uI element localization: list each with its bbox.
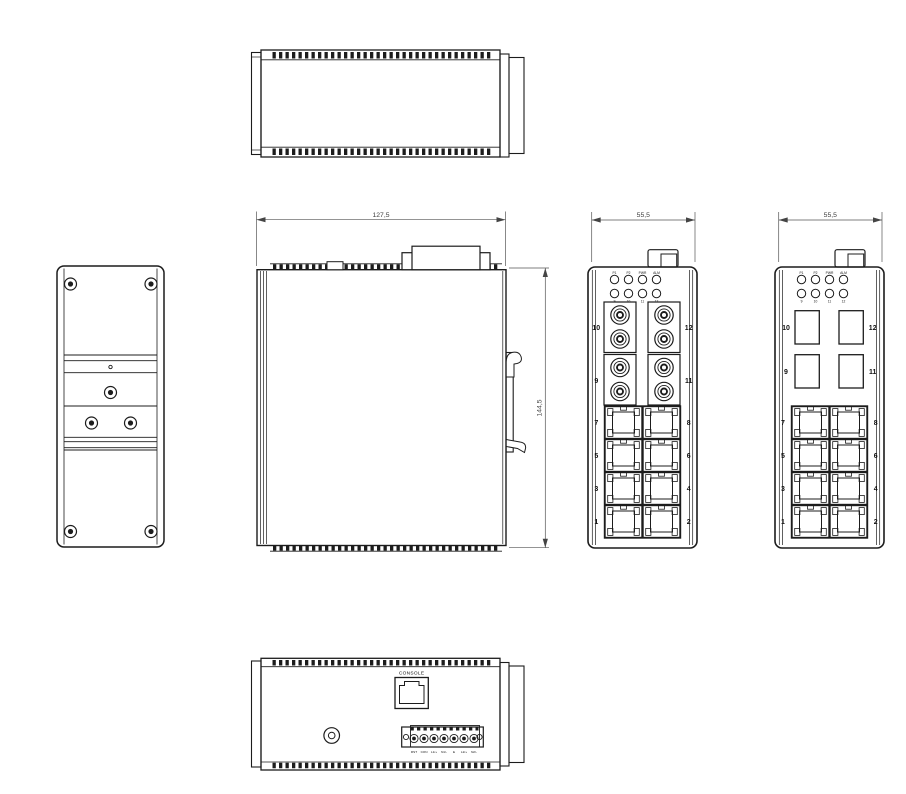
- rj45-port-label: 6: [874, 453, 878, 460]
- st-connector: [611, 306, 629, 324]
- led-label: P2: [626, 271, 630, 275]
- ground-screw: [324, 728, 340, 744]
- rj45-port-label: 3: [781, 486, 785, 493]
- dimension-overall-height: 144,5: [509, 268, 549, 548]
- rj45-port: [643, 506, 680, 538]
- rj45-port: [643, 473, 680, 505]
- console-label: CONSOLE: [399, 671, 425, 677]
- st-connector: [611, 382, 629, 400]
- fiber-port-label: 11: [869, 369, 877, 376]
- din-clip-top-step: [848, 254, 864, 267]
- led-label: 10: [814, 300, 818, 304]
- fiber-port-label: 9: [594, 378, 598, 385]
- front-view-sc: 55,5 P1 P2 PWR ALM 9 10 11 12: [775, 212, 884, 548]
- clip-spring-hook: [506, 352, 521, 377]
- top-view-body-outline: [261, 50, 500, 157]
- terminal-label: RST: [411, 750, 417, 754]
- rj45-port-label: 2: [874, 519, 878, 526]
- terminal-screw: [460, 734, 468, 742]
- console-port: [395, 678, 428, 709]
- dim-height-label: 144,5: [537, 399, 544, 416]
- rj45-port-label: 2: [687, 519, 691, 526]
- rj45-port: [792, 440, 829, 472]
- led-indicator: [797, 275, 805, 283]
- mounting-screw: [145, 278, 157, 290]
- rj45-port-label: 3: [594, 486, 598, 493]
- st-connector: [655, 330, 673, 348]
- plate-screw: [125, 417, 137, 429]
- din-clip-top-step: [661, 254, 677, 267]
- led-cluster: P1 P2 PWR ALM 9 10 11 12: [797, 271, 847, 304]
- led-indicator: [825, 275, 833, 283]
- sc-slot: [795, 311, 819, 344]
- dim-front-width-label: 55,5: [637, 212, 650, 219]
- top-view: [252, 50, 525, 157]
- rj45-port-label: 6: [687, 453, 691, 460]
- terminal-screw: [420, 734, 428, 742]
- led-label: ALM: [653, 271, 660, 275]
- fiber-port-label: 12: [869, 325, 877, 332]
- rj45-port: [605, 506, 642, 538]
- rj45-port-label: 5: [781, 453, 785, 460]
- rj45-port: [792, 407, 829, 439]
- rj45-port-label: 5: [594, 453, 598, 460]
- top-tab: [327, 262, 343, 270]
- terminal-screw: [440, 734, 448, 742]
- dimension-front-width: 55,5: [592, 212, 695, 262]
- sc-slot: [839, 311, 863, 344]
- st-connector: [655, 306, 673, 324]
- led-indicator: [638, 275, 646, 283]
- led-indicator: [624, 289, 632, 297]
- led-indicator: [638, 289, 646, 297]
- din-mount-plate: [64, 355, 157, 450]
- rj45-port: [605, 407, 642, 439]
- rj45-port: [830, 440, 867, 472]
- led-indicator: [797, 289, 805, 297]
- led-label: P2: [813, 271, 817, 275]
- terminal-label: E: [453, 750, 455, 754]
- din-clip-top: [648, 250, 678, 267]
- plate-screw: [105, 387, 117, 399]
- din-rail-bracket-step: [412, 246, 480, 270]
- rj45-port: [792, 506, 829, 538]
- terminal-label: L1/+: [431, 750, 437, 754]
- rj45-port: [643, 407, 680, 439]
- rj45-port-label: 1: [594, 519, 598, 526]
- led-label: P1: [612, 271, 616, 275]
- rj45-port-label: 7: [781, 420, 785, 427]
- side-view-body-outline: [257, 270, 506, 546]
- st-connector: [611, 358, 629, 376]
- led-label: PWR: [826, 271, 834, 275]
- rear-view-body-outline: [57, 266, 164, 547]
- din-rail-bracket-edge: [509, 666, 524, 763]
- dim-width-label: 127,5: [372, 212, 389, 219]
- led-indicator: [811, 289, 819, 297]
- fiber-port-block-st: 10 9 12 11: [592, 302, 692, 405]
- rj45-port: [605, 473, 642, 505]
- mechanical-drawing-sheet: 127,5 144,5 55,5 P1 P2: [0, 0, 906, 794]
- fiber-port-label: 11: [685, 378, 693, 385]
- rj45-port-label: 8: [874, 420, 878, 427]
- fiber-port-label: 10: [592, 325, 600, 332]
- front-view-st: 55,5 P1 P2 PWR ALM 9 10 11 12: [588, 212, 697, 548]
- fiber-port-label: 9: [784, 369, 788, 376]
- sc-slot: [839, 355, 863, 388]
- led-label: 11: [641, 300, 645, 304]
- dim-front-width-label: 55,5: [824, 212, 837, 219]
- led-indicator: [825, 289, 833, 297]
- mounting-screw: [65, 278, 77, 290]
- plate-screw: [86, 417, 98, 429]
- st-connector: [655, 358, 673, 376]
- st-connector: [655, 382, 673, 400]
- led-indicator: [610, 289, 618, 297]
- led-label: 11: [828, 300, 832, 304]
- terminal-screw: [450, 734, 458, 742]
- fiber-port-block-sc: 10 9 12 11: [782, 311, 877, 388]
- rj45-port: [830, 407, 867, 439]
- sc-slot: [795, 355, 819, 388]
- front-panel-edge: [252, 53, 262, 155]
- rj45-port-label: 4: [874, 486, 878, 493]
- terminal-label: CON: [421, 750, 428, 754]
- led-indicator: [839, 289, 847, 297]
- rj45-port: [605, 440, 642, 472]
- rj45-port: [643, 440, 680, 472]
- terminal-mount-screw: [403, 734, 408, 739]
- din-rail-bracket-edge: [509, 58, 524, 154]
- terminal-screw: [430, 734, 438, 742]
- front-panel-edge: [252, 661, 262, 767]
- rj45-port-block: 7 5 3 1 8 6 4 2: [781, 406, 878, 538]
- terminal-block: RST CON L1/+ N1/- E L2/+ N2/-: [402, 726, 484, 755]
- rj45-port-label: 1: [781, 519, 785, 526]
- mounting-screw: [145, 526, 157, 538]
- rear-flange: [500, 54, 509, 157]
- rear-flange: [500, 663, 509, 767]
- led-label: 9: [801, 300, 803, 304]
- led-indicator: [811, 275, 819, 283]
- led-indicator: [610, 275, 618, 283]
- led-cluster: P1 P2 PWR ALM 9 10 11 12: [610, 271, 660, 304]
- rj45-port-label: 8: [687, 420, 691, 427]
- st-connector: [611, 330, 629, 348]
- rear-view: [57, 266, 164, 547]
- led-indicator: [652, 289, 660, 297]
- din-rail-clip: [506, 352, 525, 452]
- rj45-port: [792, 473, 829, 505]
- pilot-hole: [109, 365, 112, 368]
- terminal-label: N2/-: [471, 750, 477, 754]
- rj45-port: [830, 506, 867, 538]
- led-label: PWR: [639, 271, 647, 275]
- rj45-port-block: 7 5 3 1 8 6 4 2: [594, 406, 690, 538]
- rj45-port: [830, 473, 867, 505]
- rj45-port-label: 4: [687, 486, 691, 493]
- fiber-port-label: 10: [782, 325, 790, 332]
- din-clip-top: [835, 250, 865, 267]
- rj45-port-label: 7: [594, 420, 598, 427]
- fiber-port-label: 12: [685, 325, 693, 332]
- mounting-screw: [65, 526, 77, 538]
- terminal-label: N1/-: [441, 750, 447, 754]
- terminal-label: L2/+: [461, 750, 467, 754]
- led-label: P1: [799, 271, 803, 275]
- led-indicator: [839, 275, 847, 283]
- dimension-front-width: 55,5: [779, 212, 882, 262]
- switch-dimension-drawing: 127,5 144,5 55,5 P1 P2: [0, 0, 906, 794]
- terminal-screw: [410, 734, 418, 742]
- side-view: 127,5 144,5: [257, 212, 550, 552]
- led-label: ALM: [840, 271, 847, 275]
- led-indicator: [624, 275, 632, 283]
- bottom-view: CONSOLE RST CON L1/+ N1/- E: [252, 658, 525, 770]
- led-label: 12: [842, 300, 846, 304]
- led-indicator: [652, 275, 660, 283]
